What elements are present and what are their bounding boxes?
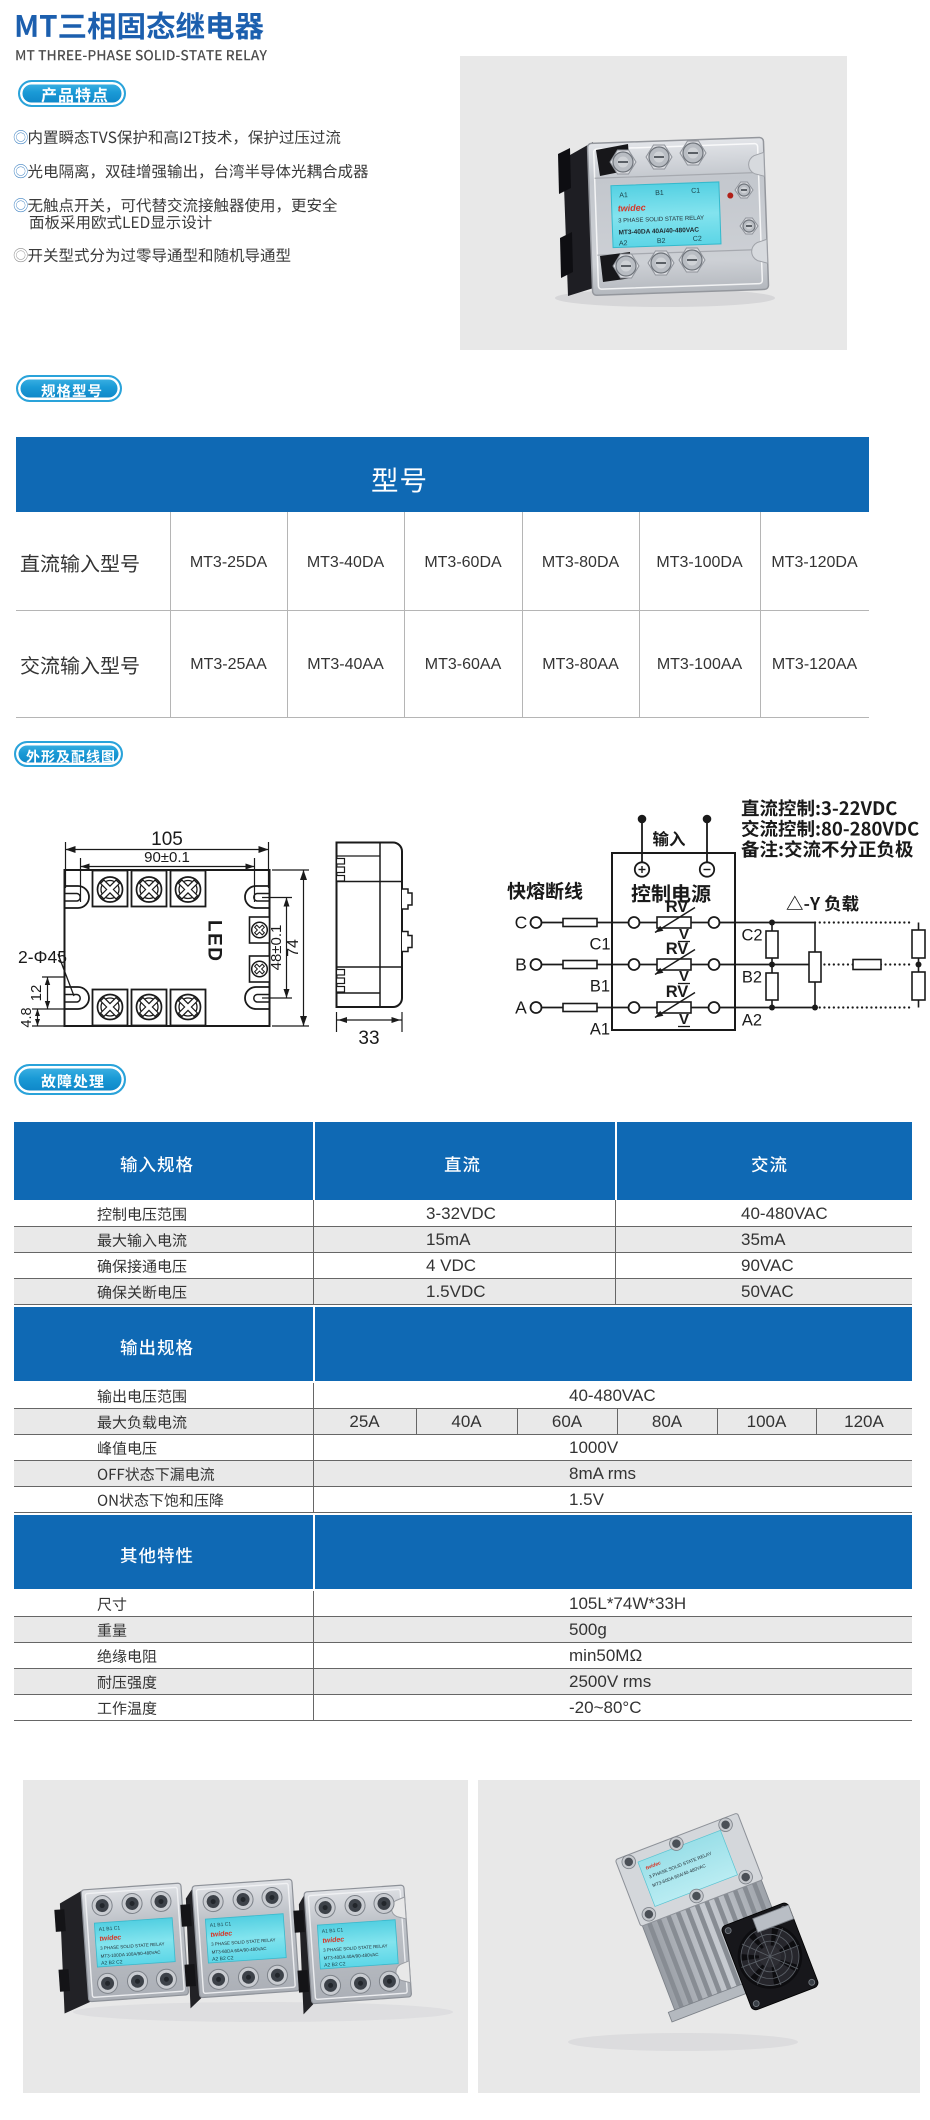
svg-text:4.8: 4.8	[19, 1007, 35, 1027]
svg-text:C1: C1	[691, 188, 700, 195]
svg-text:LED: LED	[204, 920, 225, 963]
svg-text:A: A	[515, 998, 527, 1018]
svg-text:V: V	[679, 1011, 689, 1028]
svg-text:A2: A2	[742, 1012, 762, 1030]
svg-text:33: 33	[358, 1028, 379, 1049]
svg-text:A1: A1	[619, 192, 628, 199]
svg-text:B1: B1	[590, 978, 610, 996]
svg-text:C: C	[515, 913, 528, 933]
svg-text:A1: A1	[590, 1021, 610, 1039]
svg-text:RV: RV	[666, 898, 689, 916]
svg-text:C2: C2	[693, 236, 702, 243]
svg-text:C1: C1	[589, 936, 610, 954]
svg-text:C2: C2	[741, 927, 762, 945]
svg-text:12: 12	[28, 985, 45, 1002]
svg-text:twidec: twidec	[618, 202, 646, 213]
svg-text:A2: A2	[619, 240, 628, 247]
svg-text:B1: B1	[655, 190, 664, 197]
svg-text:RV: RV	[666, 983, 689, 1001]
svg-text:74: 74	[285, 939, 302, 957]
svg-text:B: B	[515, 955, 527, 975]
svg-text:90±0.1: 90±0.1	[144, 849, 190, 866]
svg-text:B2: B2	[657, 238, 666, 245]
svg-text:105: 105	[151, 829, 183, 850]
svg-text:B2: B2	[742, 969, 762, 987]
svg-text:RV: RV	[666, 940, 689, 958]
svg-text:48±0.1: 48±0.1	[268, 925, 285, 971]
